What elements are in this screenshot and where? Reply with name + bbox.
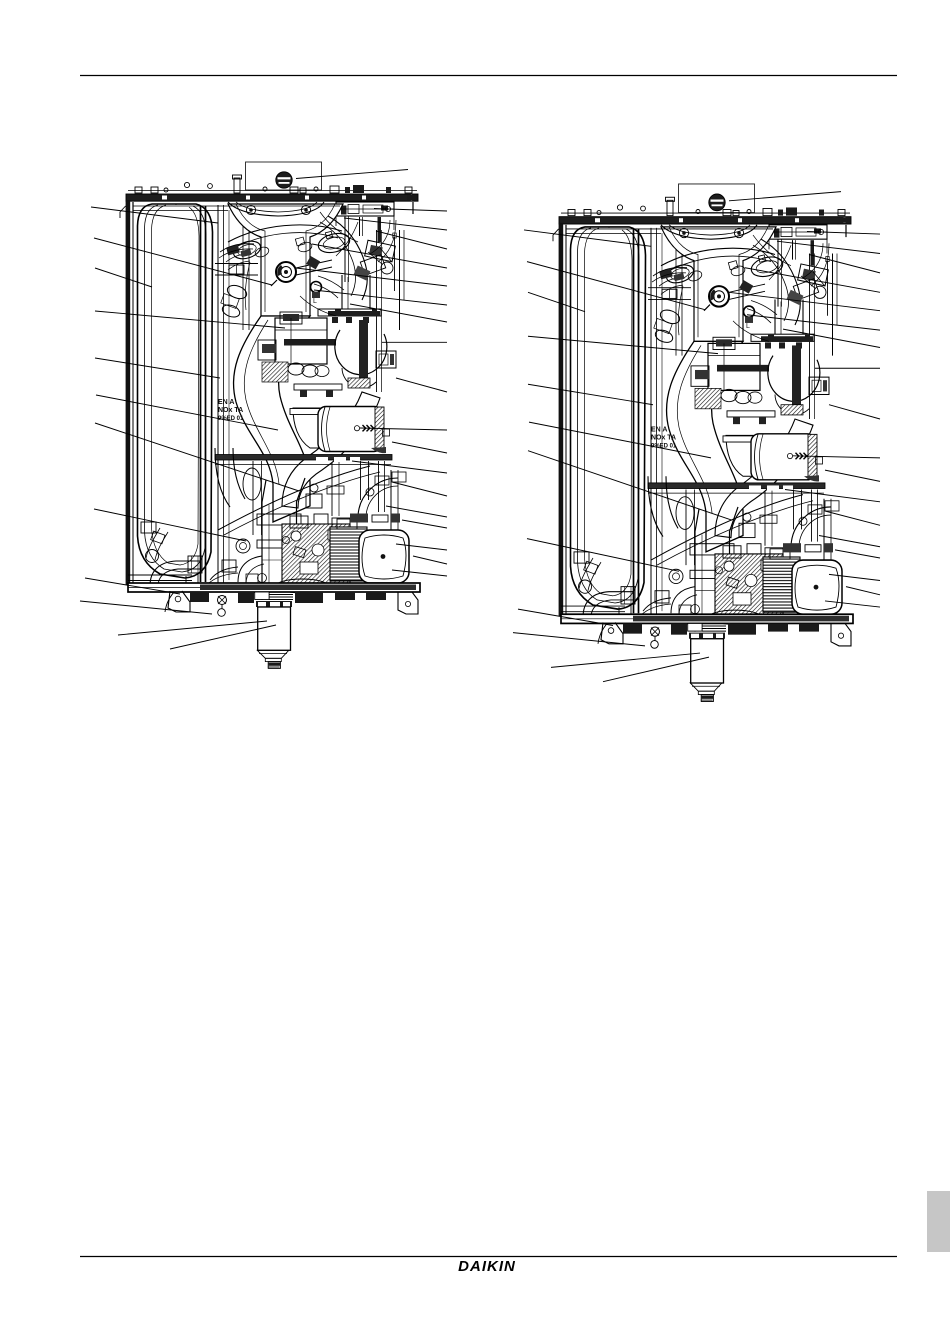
svg-text:DAIKIN: DAIKIN xyxy=(458,1258,516,1275)
